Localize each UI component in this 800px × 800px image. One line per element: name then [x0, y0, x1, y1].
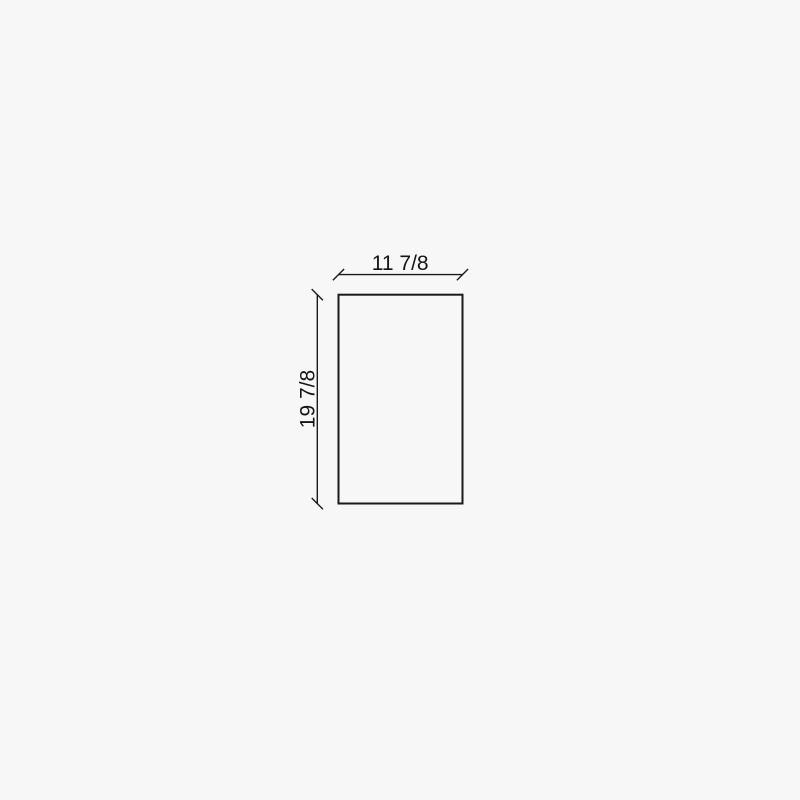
svg-text:19 7/8: 19 7/8	[297, 370, 320, 428]
svg-text:11 7/8: 11 7/8	[372, 252, 429, 275]
